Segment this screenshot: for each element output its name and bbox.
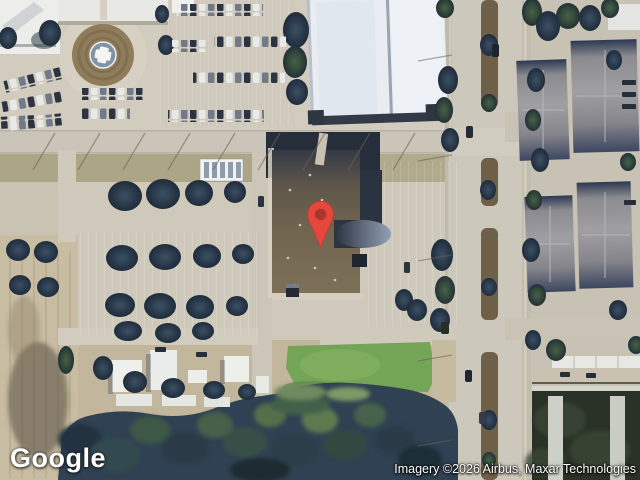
imagery-attribution: Imagery ©2026 Airbus, Maxar Technologies (394, 462, 636, 476)
road-median (481, 0, 498, 480)
pin-body (308, 201, 334, 248)
warehouse-building (304, 0, 448, 125)
pin-dot (315, 209, 326, 221)
rooftop-panels (200, 159, 243, 181)
map-pin-icon[interactable] (306, 200, 335, 249)
google-logo[interactable]: Google (10, 443, 106, 474)
satellite-map[interactable]: Google Imagery ©2026 Airbus, Maxar Techn… (0, 0, 640, 480)
